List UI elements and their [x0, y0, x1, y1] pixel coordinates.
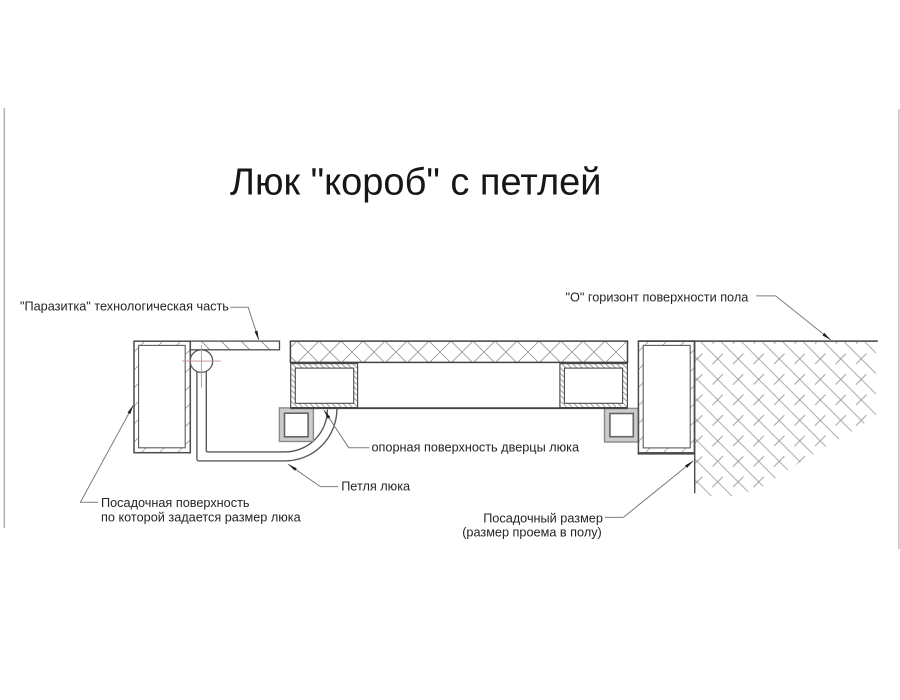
svg-text:опорная поверхность дверцы люк: опорная поверхность дверцы люка: [372, 441, 580, 455]
svg-text:"Паразитка" технологическая ча: "Паразитка" технологическая часть: [20, 299, 229, 313]
svg-text:Люк "короб" с петлей: Люк "короб" с петлей: [230, 162, 601, 204]
svg-text:Посадочный размер: Посадочный размер: [483, 511, 603, 525]
svg-text:Посадочная поверхность: Посадочная поверхность: [101, 496, 250, 510]
svg-text:(размер проема в полу): (размер проема в полу): [462, 525, 602, 539]
svg-text:по которой задается размер люк: по которой задается размер люка: [101, 510, 302, 524]
svg-text:Петля люка: Петля люка: [341, 479, 411, 493]
svg-text:"О" горизонт поверхности пола: "О" горизонт поверхности пола: [566, 291, 750, 305]
